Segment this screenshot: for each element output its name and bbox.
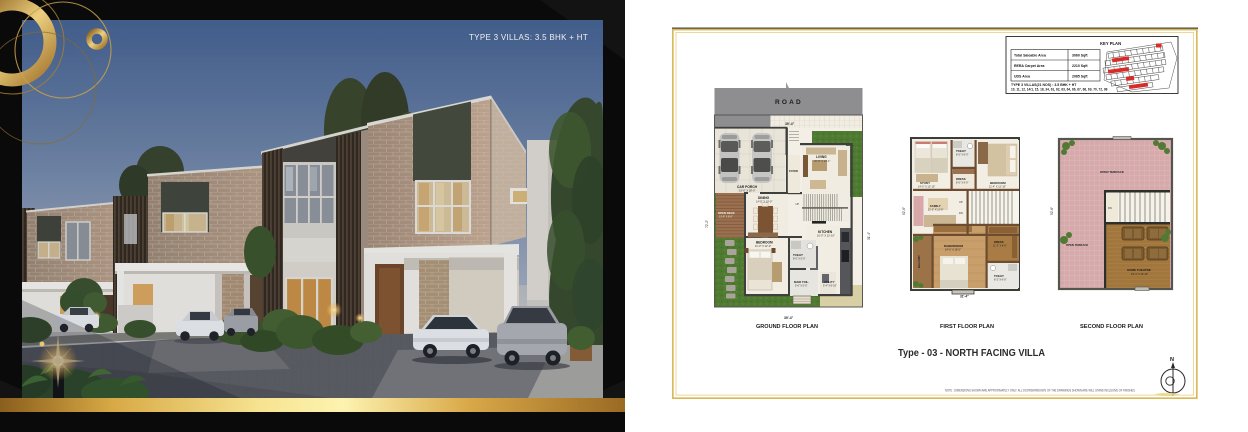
svg-text:SECOND FLOOR PLAN: SECOND FLOOR PLAN (1080, 324, 1143, 330)
svg-text:M.BEDROOM: M.BEDROOM (944, 244, 964, 248)
svg-text:39'-4": 39'-4" (784, 316, 794, 320)
svg-text:N: N (1170, 357, 1174, 363)
svg-text:KEY PLAN: KEY PLAN (1100, 41, 1121, 46)
svg-text:Total Saleable Area: Total Saleable Area (1014, 54, 1046, 58)
svg-text:FIRST FLOOR PLAN: FIRST FLOOR PLAN (940, 324, 994, 330)
svg-text:TYPE 3 VILLAS: 3.5 BHK + HT: TYPE 3 VILLAS: 3.5 BHK + HT (469, 33, 588, 42)
svg-text:TYPE 3 VILLAS(21 NOS) : 3.5 BH: TYPE 3 VILLAS(21 NOS) : 3.5 BHK + HT (1011, 83, 1077, 87)
svg-text:OPEN TERRACE: OPEN TERRACE (1066, 243, 1088, 247)
svg-text:52'-6": 52'-6" (902, 207, 906, 215)
svg-text:8'-0" X 8'-0": 8'-0" X 8'-0" (956, 181, 969, 184)
svg-text:DN: DN (1108, 206, 1112, 210)
svg-text:NOTE : DIMENSIONS SHOWN ARE AP: NOTE : DIMENSIONS SHOWN ARE APPROXIMATEL… (945, 389, 1135, 393)
svg-text:DINING: DINING (758, 196, 770, 200)
svg-text:14'-0" X 12'-10": 14'-0" X 12'-10" (918, 186, 935, 189)
svg-text:UTILITY: UTILITY (824, 280, 835, 284)
svg-text:10, 11, 12, 14/1, 15, 18, 34,: 10, 11, 12, 14/1, 15, 18, 34, 61, 62, 63… (1011, 88, 1108, 92)
svg-text:8'-2" X 8'-0": 8'-2" X 8'-0" (994, 278, 1007, 281)
svg-text:UP: UP (959, 200, 963, 204)
svg-text:5'-4" X 8'-10": 5'-4" X 8'-10" (823, 284, 837, 287)
svg-text:GROUND FLOOR PLAN: GROUND FLOOR PLAN (756, 324, 818, 330)
svg-text:HOME THEATRE: HOME THEATRE (1127, 268, 1151, 272)
svg-text:19'-4" X 13'-10": 19'-4" X 13'-10" (1131, 273, 1148, 276)
svg-text:UP: UP (796, 202, 800, 206)
svg-text:2210 Sqft: 2210 Sqft (1072, 64, 1088, 68)
svg-text:19'-0" X 18'-0": 19'-0" X 18'-0" (739, 189, 755, 193)
svg-text:8'-0" X 8'-0": 8'-0" X 8'-0" (956, 153, 969, 156)
svg-text:BALCONY: BALCONY (917, 255, 921, 268)
svg-text:STUDY: STUDY (920, 181, 930, 185)
svg-text:11'-3" X 12'-0": 11'-3" X 12'-0" (755, 244, 771, 248)
svg-text:14'-5" X 10'-0": 14'-5" X 10'-0" (756, 200, 772, 204)
svg-text:MAID TOIL.: MAID TOIL. (794, 280, 809, 284)
svg-text:TOILET: TOILET (994, 274, 1004, 278)
svg-text:20'-6" X 12'-1": 20'-6" X 12'-1" (814, 159, 830, 163)
svg-text:FAMILY: FAMILY (930, 204, 941, 208)
svg-text:OPEN DECK: OPEN DECK (718, 211, 735, 215)
svg-text:DN: DN (959, 211, 963, 215)
svg-text:BEDROOM: BEDROOM (990, 181, 1006, 185)
svg-text:5'-6" X 5'-0": 5'-6" X 5'-0" (795, 284, 808, 287)
svg-text:3060 Sqft: 3060 Sqft (1072, 54, 1088, 58)
svg-text:10'-0" X 12'-10": 10'-0" X 12'-10" (817, 234, 835, 238)
svg-text:31'-4": 31'-4" (867, 232, 871, 240)
svg-text:KITCHEN: KITCHEN (818, 230, 833, 234)
svg-text:ROAD: ROAD (775, 99, 803, 106)
svg-text:FOYER: FOYER (789, 169, 798, 173)
svg-text:TOILET: TOILET (793, 253, 803, 257)
svg-text:Type - 03 - NORTH FACING VILLA: Type - 03 - NORTH FACING VILLA (898, 348, 1046, 359)
svg-text:DRESS: DRESS (994, 240, 1004, 244)
svg-text:11'-2" X 8'-0": 11'-2" X 8'-0" (993, 244, 1007, 247)
svg-text:2085 Sqft: 2085 Sqft (1072, 75, 1088, 79)
svg-text:13'-0" X 8'-0": 13'-0" X 8'-0" (719, 216, 733, 219)
svg-text:TOILET: TOILET (956, 149, 966, 153)
svg-text:OPEN TERRACE: OPEN TERRACE (1100, 170, 1124, 174)
svg-text:39'-4": 39'-4" (785, 122, 795, 126)
svg-text:DRESS: DRESS (956, 177, 966, 181)
svg-text:LIVING: LIVING (816, 155, 827, 159)
svg-text:CAR PORCH: CAR PORCH (737, 185, 758, 189)
svg-text:31'-4": 31'-4" (960, 295, 969, 299)
svg-text:72'-2": 72'-2" (705, 220, 709, 228)
svg-text:BEDROOM: BEDROOM (756, 241, 773, 245)
svg-text:UDS Area: UDS Area (1014, 75, 1030, 79)
svg-text:RERA Carpet Area: RERA Carpet Area (1014, 64, 1045, 68)
svg-text:14'-0" X 16'-0": 14'-0" X 16'-0" (945, 249, 961, 252)
svg-text:11'-4" X 12'-10": 11'-4" X 12'-10" (989, 186, 1006, 189)
svg-text:8'-0" X 5'-0": 8'-0" X 5'-0" (793, 257, 806, 260)
svg-text:52'-6": 52'-6" (1050, 207, 1054, 215)
svg-text:11'-2" X 11'-6": 11'-2" X 11'-6" (928, 209, 944, 212)
